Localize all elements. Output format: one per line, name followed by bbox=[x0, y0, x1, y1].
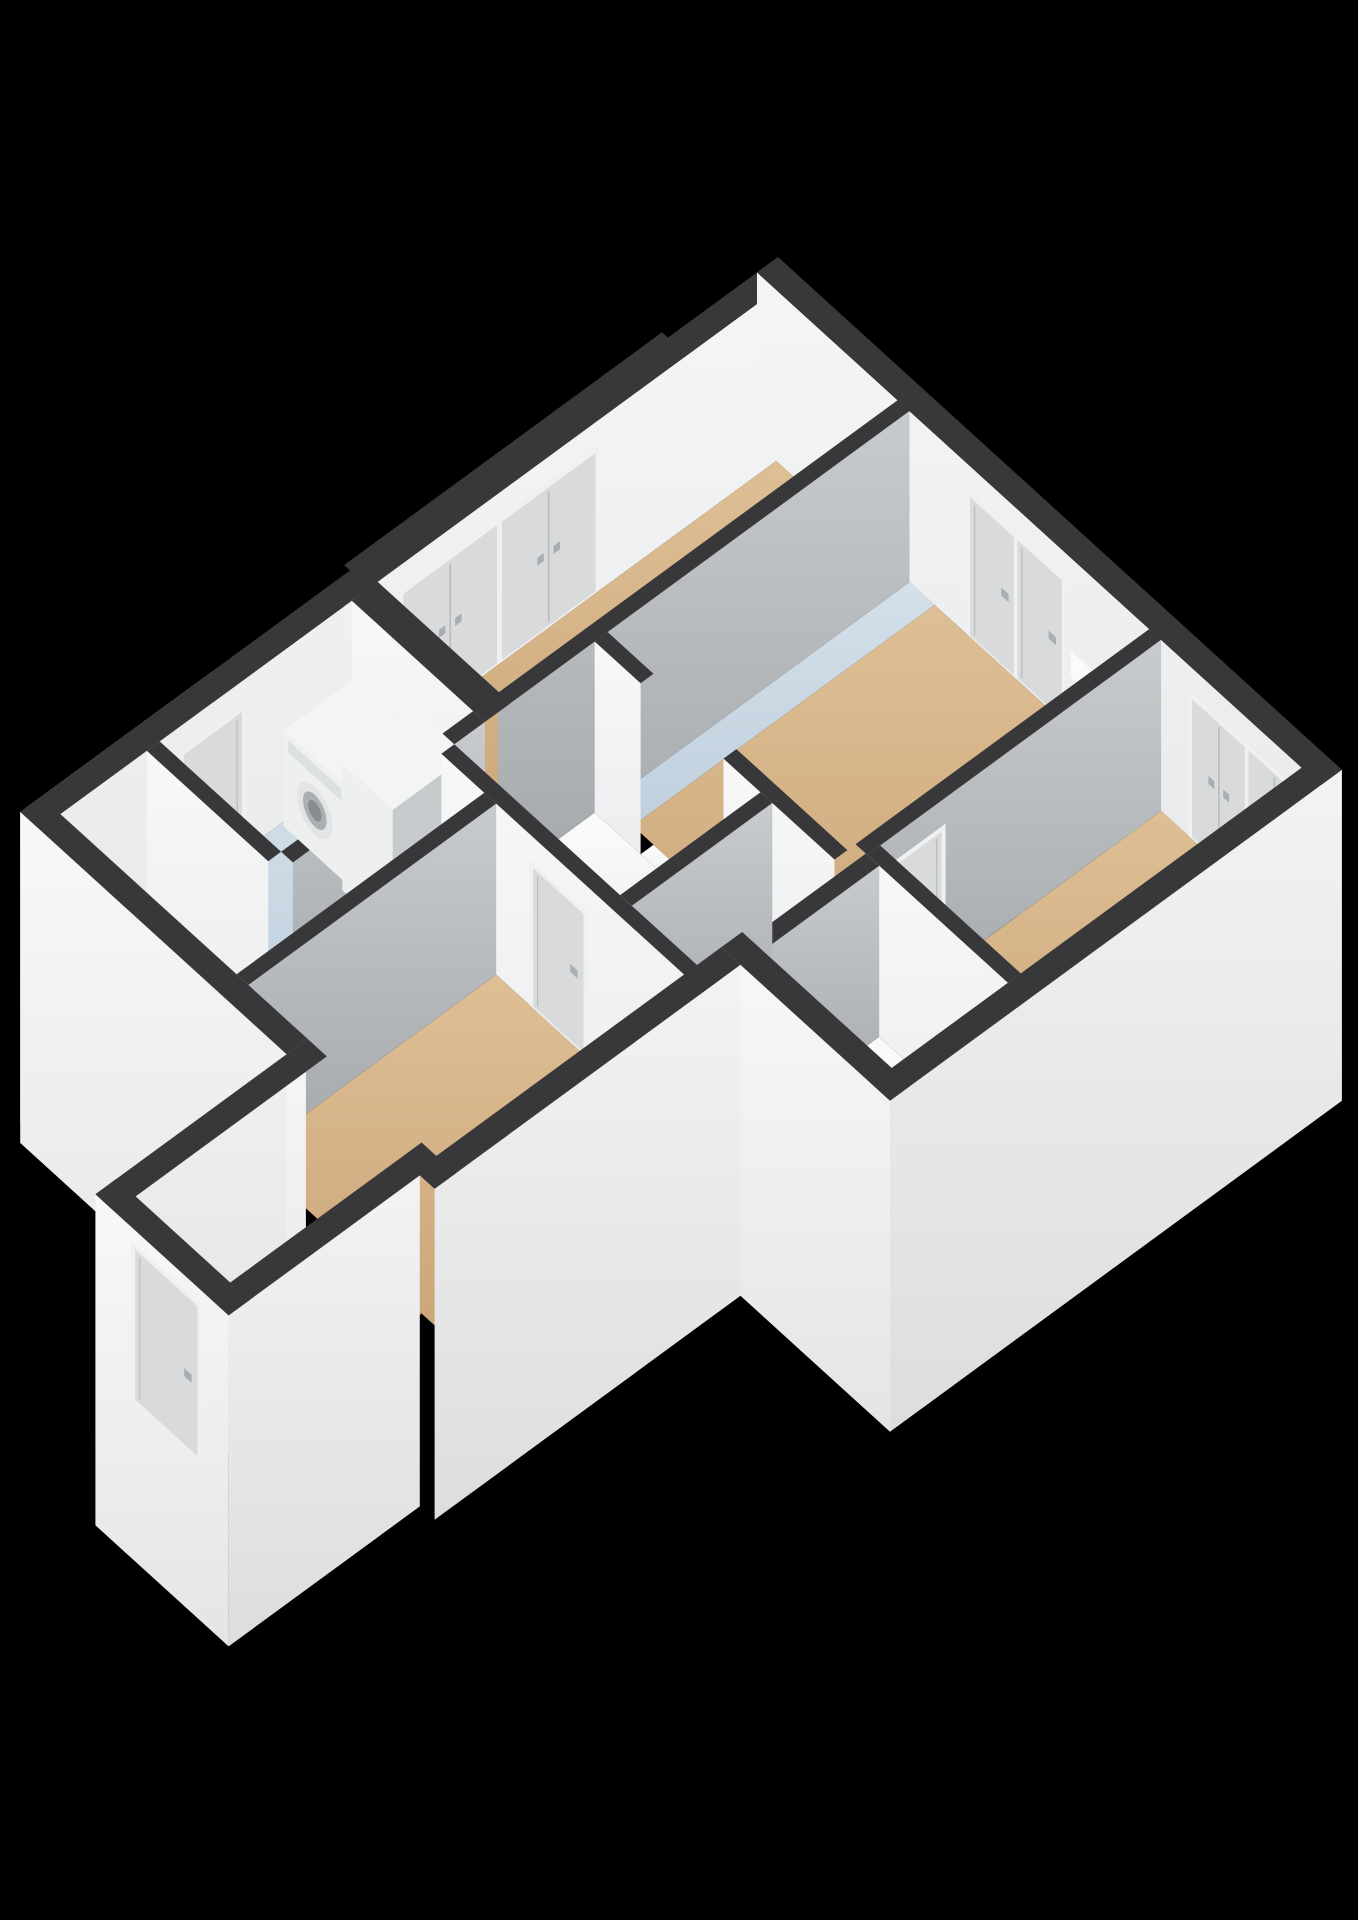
floorplan-screenshot bbox=[0, 0, 1358, 1920]
floorplan-3d-view bbox=[0, 0, 1358, 1920]
